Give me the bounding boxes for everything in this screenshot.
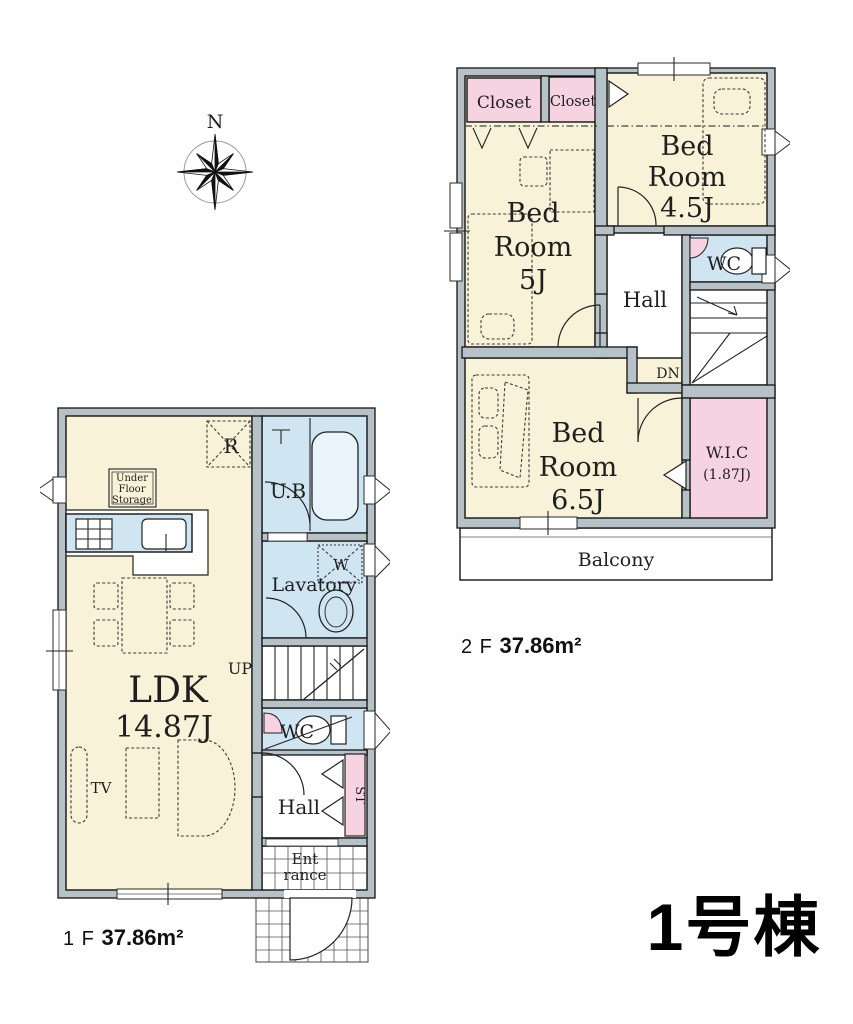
floor1-area-value: 37.86m² — [101, 925, 183, 950]
svg-text:Room: Room — [539, 452, 617, 483]
sink-icon — [142, 519, 186, 549]
svg-text:Floor: Floor — [119, 484, 146, 495]
stove-icon — [76, 519, 112, 549]
svg-text:Room: Room — [648, 162, 726, 193]
floor2-area-floor: 2 F — [461, 636, 493, 658]
svg-text:(1.87J): (1.87J) — [703, 467, 751, 483]
ldk-label: LDK — [128, 670, 209, 711]
compass-rose-icon: N — [165, 100, 265, 215]
vent-icon — [775, 257, 790, 283]
vent-icon — [375, 713, 390, 749]
floor2-plan: Closet Closet Bed Room 4.5J Bed Room 5J … — [440, 55, 790, 615]
st-label: ST — [352, 786, 367, 804]
vent-icon — [375, 546, 390, 578]
ub-label: U.B — [270, 479, 306, 503]
balcony-label: Balcony — [578, 549, 655, 571]
up-label: UP — [228, 659, 252, 678]
dn-label: DN — [656, 366, 679, 382]
compass-north-label: N — [207, 111, 224, 133]
svg-text:5J: 5J — [519, 265, 547, 296]
wc2-label: WC — [707, 253, 741, 275]
svg-text:Storage: Storage — [112, 495, 152, 506]
hall1-label: Hall — [278, 795, 320, 819]
svg-text:rance: rance — [283, 866, 326, 884]
bedroom65-label: Bed — [551, 418, 604, 449]
svg-text:14.87J: 14.87J — [115, 710, 213, 745]
wic-label: W.I.C — [706, 443, 748, 462]
floor1-area-label: 1 F 37.86m² — [63, 925, 183, 951]
underfloor-label: Under — [116, 473, 148, 484]
bedroom5-label: Bed — [506, 198, 559, 229]
svg-text:4.5J: 4.5J — [660, 193, 714, 224]
ldk-room — [66, 416, 252, 890]
floor1-area-floor: 1 F — [63, 928, 95, 950]
bedroom45-label: Bed — [660, 131, 713, 162]
svg-text:Room: Room — [494, 232, 572, 263]
floor2-area-label: 2 F 37.86m² — [461, 633, 581, 659]
svg-text:6.5J: 6.5J — [551, 485, 605, 516]
wc1-label: WC — [280, 721, 314, 743]
washer-label: W — [333, 556, 349, 574]
bathtub-icon — [312, 432, 358, 520]
closet2-label: Closet — [550, 94, 596, 110]
vent-icon — [375, 478, 390, 504]
fridge-label: R — [223, 434, 239, 458]
floor1-plan: R Under Floor Storage TV U.B — [40, 395, 390, 980]
floor2-area-value: 37.86m² — [499, 633, 581, 658]
vent-icon — [775, 131, 790, 155]
vent-icon — [40, 479, 53, 501]
compass-star — [177, 134, 253, 210]
closet1-label: Closet — [477, 93, 531, 113]
lavatory-label: Lavatory — [272, 574, 357, 596]
hall2-label: Hall — [623, 288, 668, 312]
building-number-label: 1号棟 — [615, 874, 853, 970]
tv-label: TV — [91, 779, 113, 797]
